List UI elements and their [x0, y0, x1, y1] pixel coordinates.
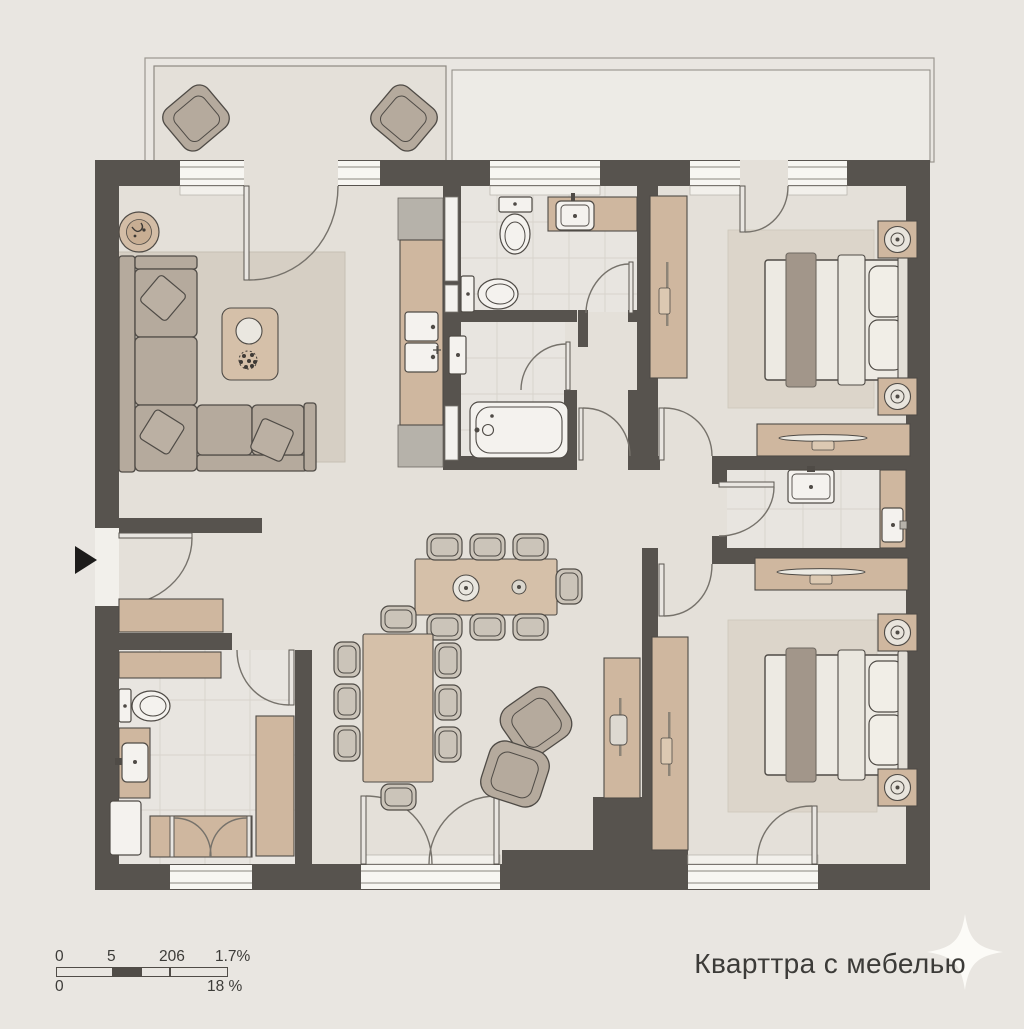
built-in-cabinet [445, 406, 458, 460]
window-cabinet [150, 816, 252, 857]
wc-shelf [119, 652, 221, 678]
dining-chair [427, 534, 462, 560]
wall-sink [449, 336, 466, 374]
scale-bar: 0 5 206 1.7% 0 18 % [55, 948, 265, 1000]
scale-label: 0 [55, 948, 64, 966]
vanity-sink [548, 193, 637, 231]
shower-sink [788, 466, 834, 503]
shower-basin [882, 508, 907, 542]
dining-chair [334, 726, 360, 761]
dining-chair [513, 614, 548, 640]
desk [604, 658, 640, 798]
dining-chair [513, 534, 548, 560]
window [361, 855, 500, 889]
dresser-with-mirror [757, 424, 910, 456]
balcony-door-opening [244, 160, 338, 186]
dining-chair [470, 534, 505, 560]
balcony-right-floor [452, 70, 930, 162]
entry-console [119, 599, 223, 632]
scale-bar-segment [112, 968, 142, 976]
scale-label: 18 % [207, 978, 242, 996]
window [490, 161, 600, 195]
window [180, 161, 244, 195]
plant-pot [119, 212, 159, 252]
balcony [145, 58, 934, 162]
scale-label: 5 [107, 948, 116, 966]
entry-opening [95, 528, 119, 606]
floor-plan [0, 0, 1024, 1024]
built-in-cabinet [445, 285, 458, 312]
double-bed [765, 253, 908, 387]
scale-label: 206 [159, 948, 185, 966]
dining-chair [435, 685, 461, 720]
dining-chair [470, 614, 505, 640]
toilet [119, 689, 170, 722]
dining-chair [435, 727, 461, 762]
dining-table-vertical [363, 634, 433, 782]
kitchen-appliance [398, 198, 443, 240]
scale-label: 1.7% [215, 948, 250, 966]
balcony-door-opening-2 [740, 160, 788, 186]
tall-cabinet [256, 716, 294, 856]
scale-bar-ruler [56, 967, 228, 977]
window [690, 161, 740, 195]
wardrobe [652, 637, 688, 850]
window [788, 161, 847, 195]
bidet [461, 276, 518, 312]
window [170, 865, 252, 889]
nightstand-with-lamp [878, 769, 917, 806]
built-in-cabinet [445, 197, 458, 281]
vanity-sink [115, 728, 150, 798]
wardrobe [650, 196, 687, 378]
dining-chair [556, 569, 582, 604]
nightstand-with-lamp [878, 221, 917, 258]
double-bed [765, 648, 908, 782]
scale-bar-tick [169, 968, 171, 976]
dining-chair [381, 784, 416, 810]
shower-tray [110, 801, 141, 855]
nightstand-with-lamp [878, 378, 917, 415]
dining-chair [435, 643, 461, 678]
dresser-with-mirror [755, 558, 908, 590]
nightstand-with-lamp [878, 614, 917, 651]
kitchen-appliance [398, 425, 443, 467]
dining-table-horizontal [415, 559, 557, 615]
plan-title: Кварттра с мебелью [640, 948, 966, 980]
window [688, 855, 818, 889]
entrance-arrow-icon [75, 546, 97, 574]
bathtub [470, 402, 568, 458]
scale-label: 0 [55, 978, 64, 996]
dining-chair [381, 606, 416, 632]
window [338, 161, 380, 185]
toilet [499, 197, 532, 254]
coffee-table [222, 308, 278, 380]
dining-chair [334, 684, 360, 719]
dining-chair [334, 642, 360, 677]
